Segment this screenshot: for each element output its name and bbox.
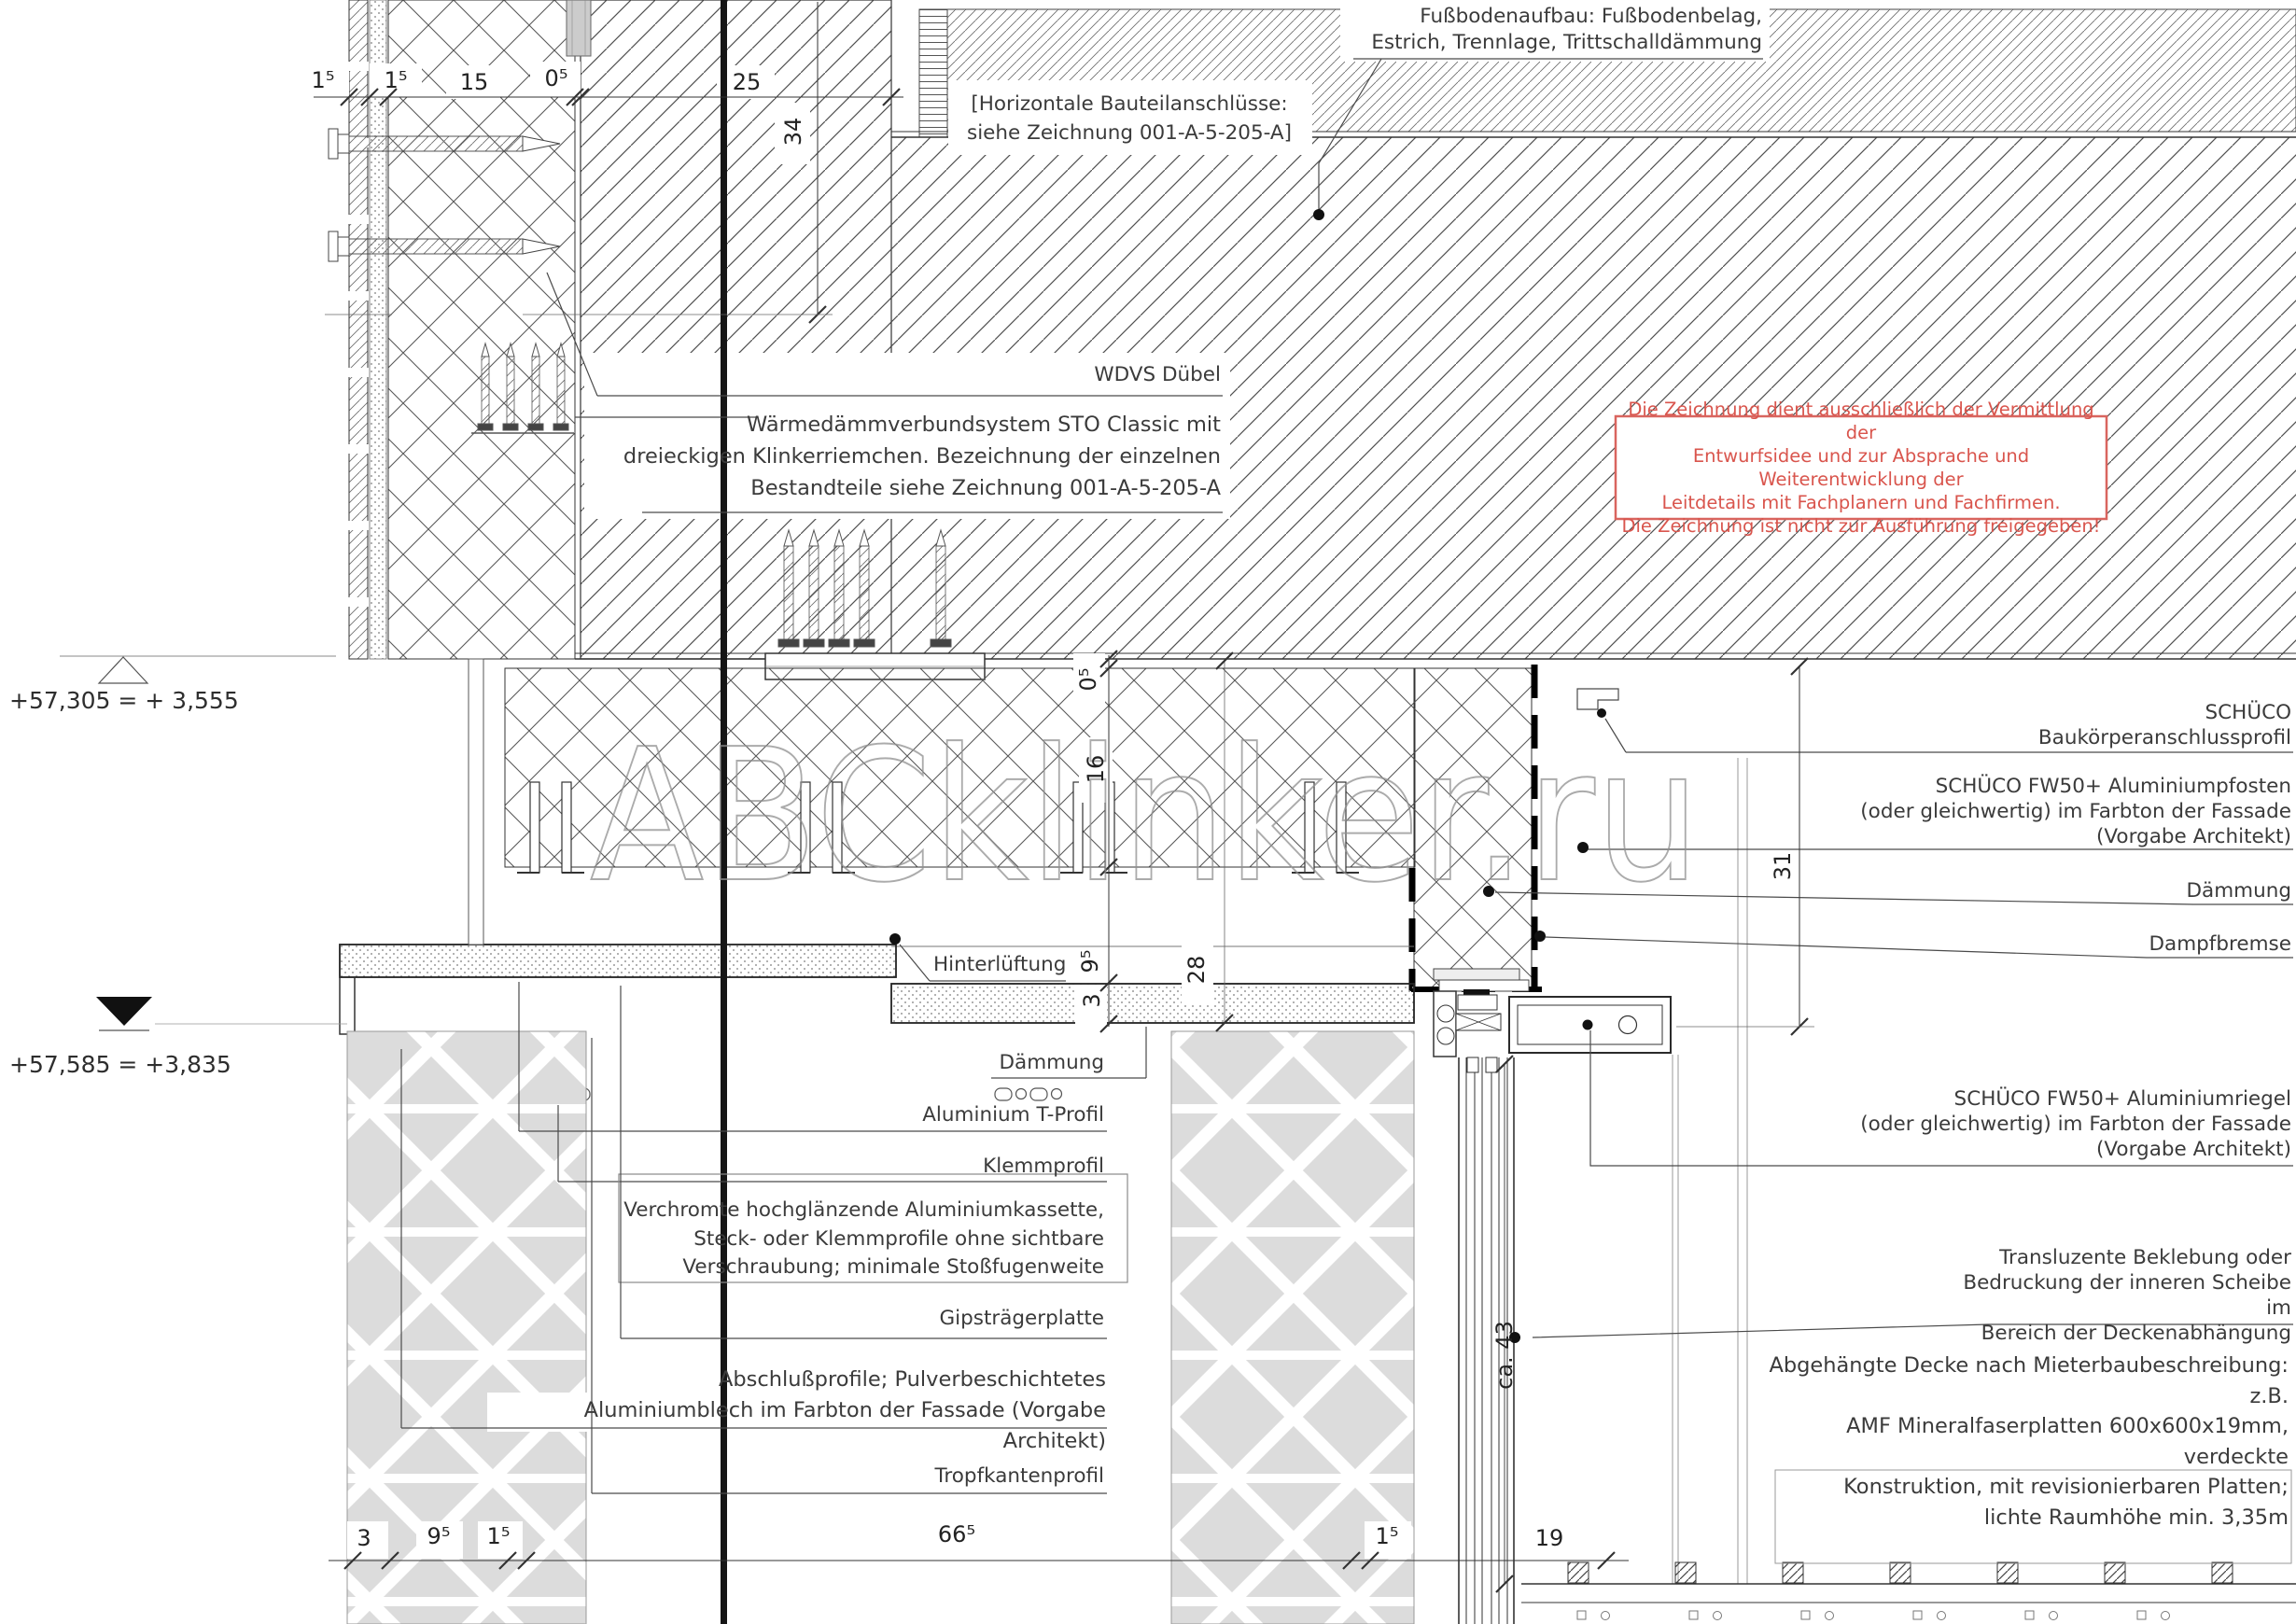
cassette-tray-right	[891, 984, 1414, 1023]
dim-bottom-1: 3	[336, 1525, 392, 1551]
label-tropfkantenprofil: Tropfkantenprofil	[917, 1463, 1104, 1489]
label-kassette: Verchromte hochglänzende Aluminiumkasset…	[616, 1197, 1104, 1282]
parapet-bracket	[567, 0, 591, 56]
label-horizontale-anschluesse: [Horizontale Bauteilanschlüsse: siehe Ze…	[961, 90, 1297, 147]
dim-height-34: 34	[781, 102, 805, 161]
dim-side-16: 16	[1084, 736, 1108, 802]
label-hinterlueftung: Hinterlüftung	[933, 952, 1066, 977]
label-baukoerperanschlussprofil: SCHÜCO Baukörperanschlussprofil	[1960, 700, 2291, 750]
dim-bottom-5: 1⁵	[1359, 1523, 1415, 1549]
label-fussbodenaufbau: Fußbodenaufbau: Fußbodenbelag, Estrich, …	[1335, 4, 1762, 56]
label-daemmung-right: Dämmung	[2100, 878, 2291, 903]
label-abschlussprofile: Abschlußprofile; Pulverbeschichtetes Alu…	[495, 1365, 1106, 1457]
dim-side-ca43: ca. 43	[1492, 1309, 1517, 1402]
dim-top-5: 25	[721, 69, 773, 95]
cassette-tray-left	[340, 945, 896, 977]
label-wdvs-system: Wärmedämmverbundsystem STO Classic mit d…	[588, 409, 1221, 504]
anschlussprofil-glyph	[1577, 689, 1618, 709]
watermark-text: ABCklinker.ru	[590, 710, 1701, 923]
clamp-profile-slots	[538, 1088, 1062, 1100]
label-t-profil: Aluminium T-Profil	[917, 1102, 1104, 1127]
ceiling-edge-symbols	[1577, 1611, 2170, 1620]
architectural-detail-drawing: ABCklinker.ru Fußbodenaufbau: Fußbodenbe…	[0, 0, 2296, 1624]
warning-note: Die Zeichnung dient ausschließlich der V…	[1616, 416, 2107, 519]
elevation-triangle-filled	[96, 997, 152, 1026]
dim-top-3: 15	[450, 69, 498, 95]
label-abgehaengte-decke: Abgehängte Decke nach Mieterbaubeschreib…	[1736, 1351, 2289, 1533]
label-daemmung-mid: Dämmung	[917, 1050, 1104, 1075]
elevation-upper: +57,305 = + 3,555	[9, 687, 239, 714]
dim-bottom-3: 1⁵	[470, 1523, 526, 1549]
edge-closure-profile	[469, 659, 483, 945]
label-wdvs-duebel: WDVS Dübel	[933, 362, 1221, 387]
label-klemmprofil: Klemmprofil	[917, 1154, 1104, 1179]
edge-insulation-strip	[919, 9, 947, 137]
dim-side-3: 3	[1080, 968, 1104, 1033]
riegel-leader-dot	[1583, 1020, 1593, 1030]
dim-bottom-4: 66⁵	[919, 1521, 994, 1547]
adhesive-layer	[370, 0, 386, 659]
dim-side-05: 0⁵	[1076, 647, 1100, 712]
dim-side-31: 31	[1771, 833, 1795, 899]
dim-bottom-2: 9⁵	[411, 1523, 467, 1549]
label-dampfbremse: Dampfbremse	[2100, 931, 2291, 957]
label-pfosten: SCHÜCO FW50+ Aluminiumpfosten (oder glei…	[1859, 774, 2291, 849]
label-gipstraegerplatte: Gipsträgerplatte	[917, 1306, 1104, 1331]
elevation-triangle-open	[99, 657, 147, 683]
ceiling-hangers	[1568, 1562, 2233, 1583]
dim-side-28: 28	[1184, 937, 1209, 1002]
klinker-riemchen-strip	[349, 0, 368, 659]
elevation-lower: +57,585 = +3,835	[9, 1051, 231, 1078]
dim-top-2: 1⁵	[373, 67, 418, 93]
label-transluzent: Transluzente Beklebung oder Bedruckung d…	[1941, 1245, 2291, 1346]
label-riegel: SCHÜCO FW50+ Aluminiumriegel (oder gleic…	[1859, 1086, 2291, 1162]
dim-bottom-6: 19	[1521, 1525, 1577, 1551]
dim-top-4: 0⁵	[534, 65, 579, 91]
dim-top-1: 1⁵	[301, 67, 345, 93]
